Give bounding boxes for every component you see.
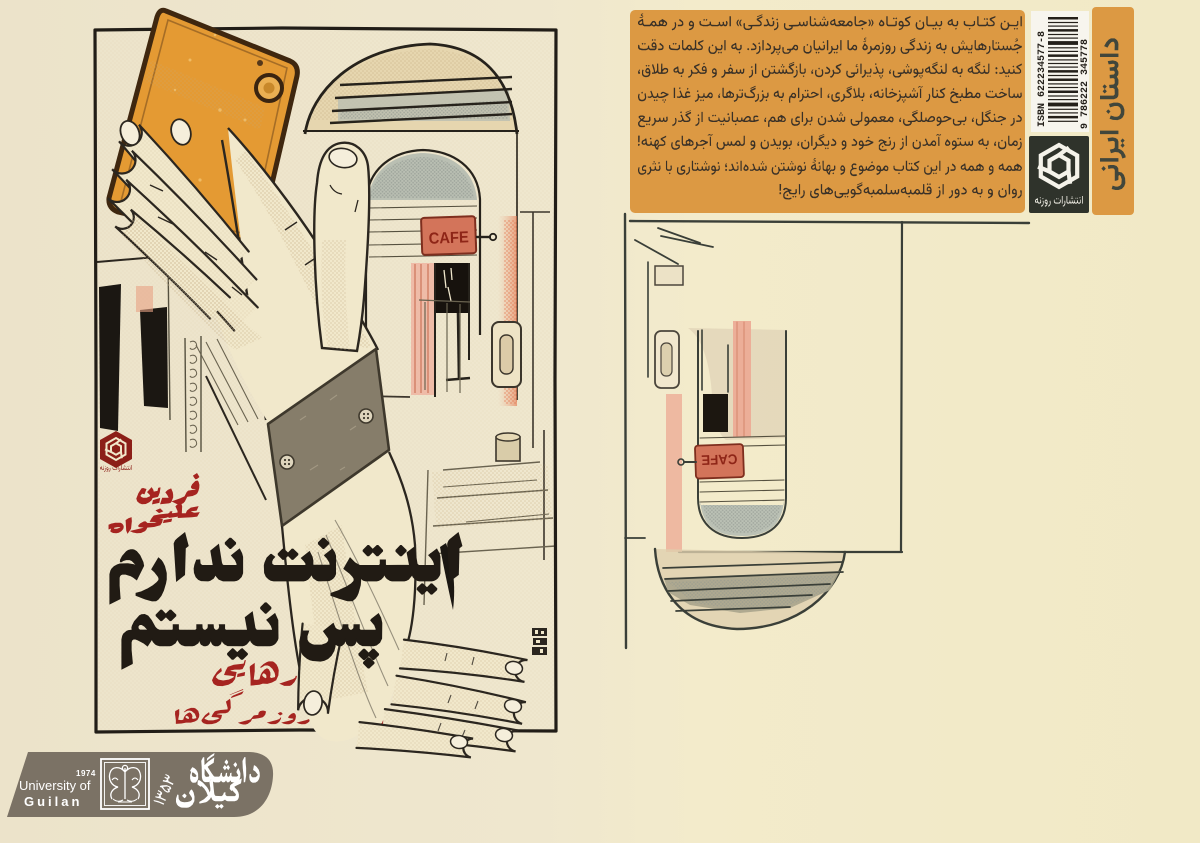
svg-text:University of: University of: [19, 778, 91, 793]
svg-text:CAFE: CAFE: [428, 229, 469, 247]
svg-text:9 786222 345778: 9 786222 345778: [1080, 39, 1091, 129]
svg-text:ISBN 622234577-8: ISBN 622234577-8: [1037, 31, 1048, 127]
svg-text:CAFE: CAFE: [701, 451, 738, 468]
svg-text:1974: 1974: [76, 769, 96, 778]
svg-text:Guilan: Guilan: [24, 794, 82, 809]
